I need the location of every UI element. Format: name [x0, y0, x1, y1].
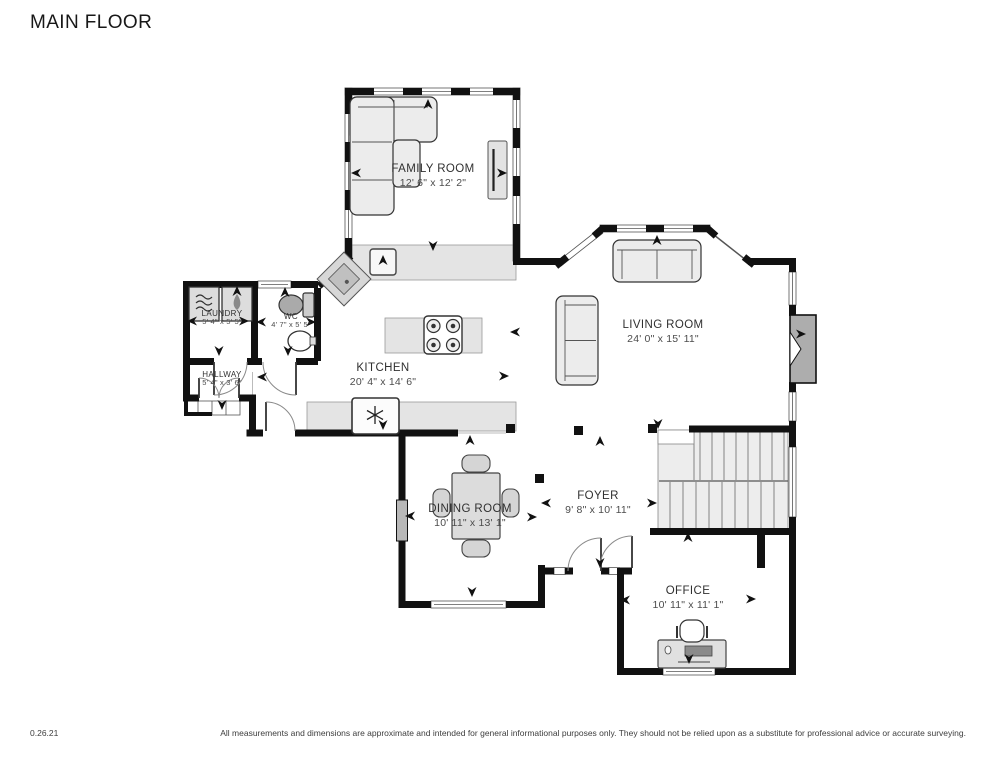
room-dims: 20' 4" x 14' 6"	[350, 376, 416, 388]
room-dims: 24' 0" x 15' 11"	[622, 333, 703, 345]
living-sofa	[613, 240, 701, 282]
direction-arrow-icon	[647, 499, 657, 508]
room-dims: 5' 4" x 3' 6"	[202, 379, 242, 388]
room-dims: 5' 4" x 5' 5"	[202, 318, 243, 327]
direction-arrow-icon	[596, 558, 605, 568]
room-label-laundry: LAUNDRY 5' 4" x 5' 5"	[202, 309, 243, 327]
room-dims: 12' 6" x 12' 2"	[391, 177, 474, 189]
room-name: FOYER	[565, 490, 631, 504]
door-leaves	[199, 362, 632, 571]
direction-arrow-icon	[527, 513, 537, 522]
room-label-family-room: FAMILY ROOM 12' 6" x 12' 2"	[391, 163, 474, 189]
direction-arrow-icon	[510, 328, 520, 337]
room-name: DINING ROOM	[428, 503, 512, 517]
cooktop	[424, 316, 462, 354]
floor-plan-svg	[0, 0, 994, 768]
fireplace	[790, 315, 816, 383]
structural-posts	[506, 424, 657, 483]
footer-disclaimer: All measurements and dimensions are appr…	[220, 728, 966, 738]
room-name: LIVING ROOM	[622, 319, 703, 333]
room-label-wc: WC 4' 7" x 5' 5"	[271, 312, 311, 330]
footer-version: 0.26.21	[30, 728, 58, 738]
door-swings	[199, 362, 632, 571]
room-label-kitchen: KITCHEN 20' 4" x 14' 6"	[350, 362, 416, 388]
room-label-dining-room: DINING ROOM 10' 11" x 13' 1"	[428, 503, 512, 529]
room-label-foyer: FOYER 9' 8" x 10' 11"	[565, 490, 631, 516]
room-dims: 10' 11" x 13' 1"	[428, 517, 512, 529]
stairs	[658, 430, 788, 531]
direction-arrow-icon	[466, 435, 475, 445]
loveseat	[556, 296, 598, 385]
room-dims: 10' 11" x 11' 1"	[653, 599, 724, 611]
office-chair	[677, 620, 707, 642]
direction-arrow-icon	[468, 587, 477, 597]
office-desk	[658, 640, 726, 668]
direction-arrow-icon	[281, 287, 290, 297]
room-label-hallway: HALLWAY 5' 4" x 3' 6"	[202, 370, 242, 388]
direction-arrow-icon	[215, 346, 224, 356]
room-label-living-room: LIVING ROOM 24' 0" x 15' 11"	[622, 319, 703, 345]
doors	[199, 362, 632, 571]
direction-arrow-icon	[257, 373, 267, 382]
direction-arrow-icon	[541, 499, 551, 508]
room-dims: 9' 8" x 10' 11"	[565, 504, 631, 516]
tv-console	[488, 141, 507, 199]
direction-arrow-icon	[499, 372, 509, 381]
direction-arrow-icon	[596, 436, 605, 446]
freezer	[352, 398, 399, 434]
stair-landing	[658, 430, 694, 444]
room-dims: 4' 7" x 5' 5"	[271, 321, 311, 330]
floor-plan	[0, 0, 994, 768]
room-name: OFFICE	[653, 585, 724, 599]
sectional-sofa	[350, 97, 437, 215]
direction-arrow-icon	[284, 346, 293, 356]
direction-arrow-icon	[746, 595, 756, 604]
room-name: KITCHEN	[350, 362, 416, 376]
wc-sink	[288, 331, 316, 351]
room-label-office: OFFICE 10' 11" x 11' 1"	[653, 585, 724, 611]
window-seat	[397, 500, 408, 541]
room-name: FAMILY ROOM	[391, 163, 474, 177]
